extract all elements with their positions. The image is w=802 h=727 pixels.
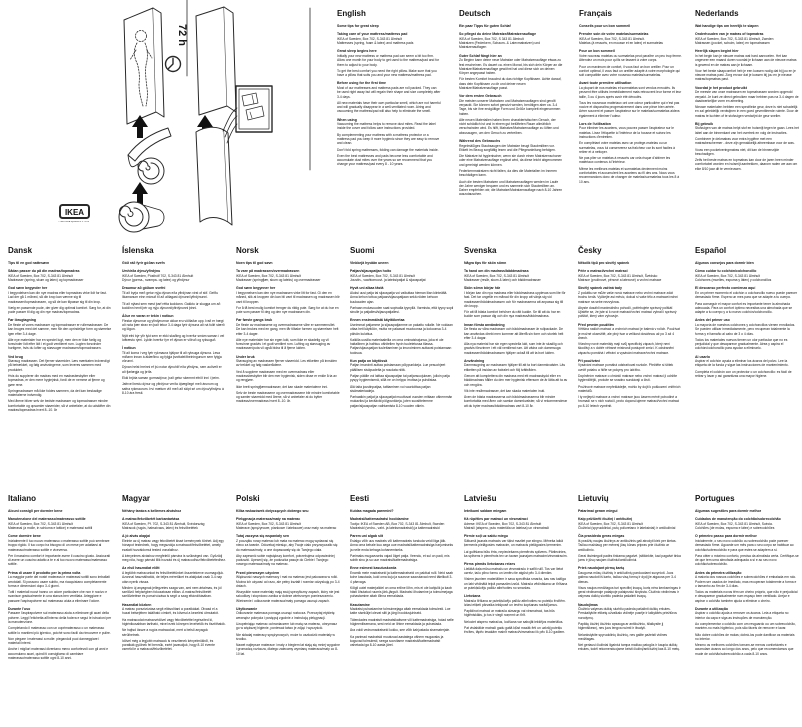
paragraph: A kényelmes alváshoz megfelelő párnára i… (122, 554, 226, 563)
section: Under brukStøvsuging av madrassen fjerne… (236, 355, 340, 404)
paragraph: Parhaan mukavuuden saat sopivalla tyynyl… (350, 306, 454, 315)
paragraph: Všechny nové materiály mají svůj specifi… (578, 342, 682, 355)
paragraph: Pour éliminer les acariens, vous pouvez … (579, 126, 683, 139)
paragraph: Visos naujos medžiagos turi specifinį kv… (578, 586, 682, 599)
paragraph: För att få bästa komfort behöver du rätt… (464, 310, 568, 319)
product-line: Colchones (muelles, espuma y látex) y co… (695, 278, 799, 282)
section: Prima di usare il prodotto per la prima … (8, 571, 112, 603)
paragraph: Ao complementar o colchão com um resguar… (695, 622, 799, 631)
section: Durante a utilizaçãoAspirar o colchão aj… (695, 607, 799, 656)
paragraph: De fleste af vores madrasser og topmadra… (8, 323, 112, 336)
section: When usingVacuuming the mattress helps t… (337, 118, 441, 167)
paragraph: Čiužinio valymas dulkių siurbliu padeda … (578, 607, 682, 620)
section: Come dormire beneInizialmente il tuo nuo… (8, 534, 112, 566)
paragraph: Vacuuming the mattress helps to remove d… (337, 122, 441, 131)
paragraph: By complementing your mattress with a ma… (337, 133, 441, 146)
section: O primeiro passo para dormir melhorInici… (695, 534, 799, 566)
paragraph: Flestar dýnurnar og yfirdýnurnar okkar e… (122, 319, 226, 332)
paragraph: Auch die besten Matratzen und Matratzena… (459, 180, 563, 197)
ikea-logo: IKEA (60, 205, 89, 218)
paragraph: En complétant votre matelas avec un prot… (579, 141, 683, 154)
language-column-fran-ais: FrançaisConseils pour un bon sommeilPren… (579, 10, 683, 186)
section: KasutamineMadratsi puhastamine tolmuimej… (350, 603, 454, 648)
paragraph: Même les meilleurs matelas et surmatelas… (579, 167, 683, 184)
section: Prieš naudojant pirmą kartąDauguma mūsų … (578, 566, 682, 598)
language-title: Nederlands (695, 10, 799, 19)
section: Al usarloAspirar el colchón ayuda a elim… (695, 355, 799, 379)
language-column-dansk: DanskTips til en god nattesøvnSådan pass… (8, 247, 112, 414)
paragraph: Zelfs het beste matras en topmatras kan … (695, 158, 799, 171)
paragraph: Visiem jauniem materiāliem ir sava speci… (464, 577, 568, 590)
paragraph: Dammsugning av madrassen hjälper till at… (464, 363, 568, 372)
section: Während des GebrauchsRegelmäßiges Staubs… (459, 139, 563, 197)
paragraph: Większość naszych materacy i mat na mate… (236, 575, 340, 588)
product-line: Matrači (atsperu, putu materiāla un late… (464, 526, 568, 530)
paragraph: Z počátku se může vaše nová matrace nebo… (578, 291, 682, 304)
paragraph: Todos os materiais novos têm um cheiro p… (695, 590, 799, 603)
product-line: Matelas (à ressorts, en mousse et en lat… (579, 41, 683, 45)
section: Before using for the first timeMost of o… (337, 81, 441, 113)
language-column-suomi: SuomiVinkkejä hyvään uneenPatjan/sijausp… (350, 247, 454, 410)
paragraph: Die meisten unserer Matratzen und Matrat… (459, 99, 563, 116)
product-line: Materace (sprężynowe, piankowe i latekso… (236, 526, 340, 530)
language-title: Français (579, 10, 683, 19)
section: Áður en varan er tekin í notkunFlestar d… (122, 314, 226, 342)
paragraph: Vouw een pocketveringmatras niet, dit ka… (695, 148, 799, 157)
paragraph: Hvis du supplerer din madras med en madr… (8, 374, 112, 387)
language-title: Eesti (350, 495, 454, 504)
language-title: Polski (236, 495, 340, 504)
section: Antes del primer usoLa mayoría de nuestr… (695, 318, 799, 350)
language-title: Lietuvių (578, 495, 682, 504)
paragraph: Til að byrja með getur nýja dýnan eða yf… (122, 291, 226, 300)
tagline: Some tips for great sleep (337, 24, 441, 29)
paragraph: Ekki brjóta saman gormadýnur, það getur … (122, 376, 226, 380)
paragraph: Støvsug madrassen. Det fjerner støvmider… (8, 359, 112, 372)
paragraph: Para obter o máximo conforto, precisa da… (695, 554, 799, 567)
paragraph: Většina našich matrací a vrchních matrac… (578, 327, 682, 340)
paragraph: A maioria dos nossos colchões e sobrecol… (695, 575, 799, 588)
paragraph: Stofzuigen van de matras helpt stof en h… (695, 126, 799, 135)
paragraph: Iš pradžių naujas čiužinys ar antčiužini… (578, 539, 682, 552)
paragraph: Med årene bliver selv de bedste madrasse… (8, 399, 112, 412)
section: Durante l'usoPassare l'aspirapolvere sul… (8, 607, 112, 660)
tagline: Kilka wskazówek dotyczących dobrego snu (236, 509, 340, 514)
paragraph: Don't fold spring mattresses, folding ca… (337, 148, 441, 152)
section: Tutaj zaczyna się wspaniały senZ początk… (236, 534, 340, 566)
language-title: Italiano (8, 495, 112, 504)
paragraph: Även de bästa madrasserna och bäddmadras… (464, 395, 568, 408)
tagline: Algumas sugestões para dormir melhor (695, 509, 799, 514)
paragraph: Sākumā jaunais matracis var šķist mazlie… (464, 539, 568, 548)
language-title: Magyar (122, 495, 226, 504)
section: Pirmie soļi uz saldu mieguSākumā jaunais… (464, 534, 568, 558)
section: Skön sömn börjar härI början kan din nya… (464, 286, 568, 318)
section: Vor dem ersten GebrauchDie meisten unser… (459, 94, 563, 135)
paragraph: Selv de beste madrassene og overmadrasse… (236, 391, 340, 404)
language-column-svenska: SvenskaNågra tips för skön sömnTa hand o… (464, 247, 568, 410)
paragraph: Todos los materiales nuevos tienen un ol… (695, 338, 799, 351)
language-title: Íslenska (122, 247, 226, 256)
section: Skvělý spánek začíná tadyZ počátku se mů… (578, 286, 682, 318)
paragraph: Die Matratze ist hygienischer, wenn sie … (459, 154, 563, 167)
paragraph: Eleinte az új matrac vagy fekvőbetét kis… (122, 539, 226, 552)
product-line: Joustin-, vaahtomuovi- ja lateksipatjat … (350, 278, 454, 282)
paragraph: Für besten Komfort brauchst du das richt… (459, 77, 563, 90)
tagline: Noen tips til god søvn (236, 261, 340, 266)
paragraph: Per il massimo comfort è importante aver… (8, 554, 112, 567)
paragraph: Parimaks mugavuseks vajad õiget patja. V… (350, 554, 454, 563)
language-title: Portugues (695, 495, 799, 504)
section: Innan första användningDe flesta av våra… (464, 323, 568, 355)
language-column-espa-ol: EspañolAlgunos consejos para dormir bien… (695, 247, 799, 380)
clock-icon (166, 57, 181, 72)
paragraph: Lai gulēšana būtu ērta, nepieciešams pie… (464, 550, 568, 559)
product-line: Dýnur (gorma-, svampa- og latex) og yfir… (122, 278, 226, 282)
mattress-roll-illustration (119, 202, 164, 232)
tagline: Ein paar Tipps für guten Schlaf (459, 24, 563, 29)
product-line: Materassi (a molle, in schiuma e lattice… (8, 526, 112, 530)
paragraph: Initially your new mattress or mattress … (337, 54, 441, 67)
section: Avant toute première utilisationLa plupa… (579, 81, 683, 118)
product-line: Mattresses (spring, foam & latex) and ma… (337, 41, 441, 45)
paragraph: Kõigil uutel materjalidel on oma eriline… (350, 586, 454, 599)
section: Bij gebruikStofzuigen van de matras help… (695, 122, 799, 171)
paragraph: Esialgu võib uus madrats või kattemadrat… (350, 539, 454, 552)
paragraph: Useimmat patjamme ja sijauspatjamme on p… (350, 323, 454, 336)
curved-mattress-illustration (196, 127, 232, 225)
section: God søvn begynder herI begyndelsen kan d… (8, 286, 112, 314)
paragraph: Anche i migliori materassi diventano men… (8, 647, 112, 660)
section: Při používáníVysávání matrace pomáhá ods… (578, 359, 682, 408)
paragraph: De fleste av madrassene og overmadrassen… (236, 323, 340, 336)
paragraph: Lielākā daļa mūsu matraču un virsmatraču… (464, 567, 568, 576)
section: Draumur að góðum svefniTil að byrja með … (122, 286, 226, 310)
section: Í notkunTil að koma í veg fyrir rykmaura… (122, 346, 226, 395)
tagline: Wat handige tips om heerlijk te slapen (695, 24, 799, 29)
section: El descanso perfecto comienza aquíEn un … (695, 286, 799, 314)
language-column-magyar: MagyarNéhány tanács a kellemes alváshozA… (122, 495, 226, 654)
paragraph: Idővel még a legjobb matracok is veszíte… (122, 639, 226, 652)
paragraph: Net geriausi čiužiniai ilgainiui tampa m… (578, 643, 682, 652)
language-column-english: EnglishSome tips for great sleepTaking c… (337, 10, 441, 169)
paragraph: Ka parimad madratsid muutuvad aastatega … (350, 635, 454, 648)
language-title: Svenska (464, 247, 568, 256)
language-column-latvie-u: LatviešuIeteikumi saldam miegamKā rūpēti… (464, 495, 568, 637)
paragraph: Tous les nouveaux matériaux ont une odeu… (579, 101, 683, 118)
paragraph: Ved å supplere madrassen med en overmadr… (236, 370, 340, 383)
product-line: Čiužiniai (spyruokliniai, putų poliureta… (578, 526, 682, 530)
language-title: Suomi (350, 247, 454, 256)
paragraph: Pat vislabākie matrači gadu gaitā kļūst … (464, 626, 568, 635)
section: Pirms pirmās lietošanas reizesLielākā da… (464, 562, 568, 590)
paragraph: Nie składaj materacy sprężynowych, może … (236, 633, 340, 642)
paragraph: Parhaatkin patjat ja sijauspatjat muuttu… (350, 395, 454, 408)
paragraph: All new materials have their own particu… (337, 101, 441, 114)
section: Před prvním použitímVětšina našich matra… (578, 323, 682, 355)
paragraph: Regelmäßiges Staubsaugen der Matratze be… (459, 144, 563, 153)
language-title: Česky (578, 247, 682, 256)
section: AnvändningDammsugning av madrassen hjälp… (464, 359, 568, 408)
paragraph: Matrača tīrīšana ar putekļsūcēju palīdz … (464, 599, 568, 608)
paragraph: Aspirar el colchón ayuda a eliminar los … (695, 359, 799, 368)
section: Guter Schlaf fängt hier anZu Beginn kann… (459, 54, 563, 91)
section: A jó alvás alapjaiEleinte az új matrac v… (122, 534, 226, 562)
paragraph: Nelankstykite spyruoklinių čiužinių, nes… (578, 633, 682, 642)
paragraph: Täiendades madratsit madratsikaitsme või… (350, 618, 454, 627)
paragraph: Alle nye materialer har en speciel lugt,… (8, 338, 112, 351)
tagline: Alcuni consigli per dormire bene (8, 509, 112, 514)
paragraph: Nelociet atsperu matračus, locīšana var … (464, 620, 568, 624)
tagline: Několik tipů pro skvělý spánek (578, 261, 682, 266)
language-title: Norsk (236, 247, 340, 256)
tagline: Conseils pour un bon sommeil (579, 24, 683, 29)
paragraph: Mesmo os melhores colchões tornam-se men… (695, 643, 799, 656)
paragraph: Completa el colchón con un protector o u… (695, 370, 799, 379)
paragraph: Inicialmente, o seu novo colchão ou sobr… (695, 539, 799, 552)
product-line: Matrace (pružinové, pěnové a latexové) a… (578, 278, 682, 282)
product-line: Matratzen (Federkern, Schaum- & Latexmat… (459, 41, 563, 50)
paragraph: Vik inte resårmadrasser, det kan skada m… (464, 389, 568, 393)
paragraph: Dauguma mūsų čiužinių ir antčiužinių par… (578, 571, 682, 584)
section: Før ibrugtagningDe fleste af vores madra… (8, 318, 112, 350)
paragraph: Completando il materasso con un coprimat… (8, 626, 112, 635)
paragraph: I begynnelsen kan den nye madrassen virk… (236, 291, 340, 304)
paragraph: I ty nejlepší matrace a vrchní matrace j… (578, 395, 682, 408)
section: Ved brugStøvsug madrassen. Det fjerner s… (8, 355, 112, 413)
language-title: Dansk (8, 247, 112, 256)
section: Hyvä uni alkaa tästäAluksi uusi patja ta… (350, 286, 454, 314)
tagline: Ieteikumi saldam miegam (464, 509, 568, 514)
product-line: Madratsid (vedru-, vaht- ja lateksmadrat… (350, 526, 454, 530)
paragraph: In het begin kan je nieuwe matras wat ha… (695, 54, 799, 67)
language-column-polski: PolskiKilka wskazówek dotyczących dobreg… (236, 495, 340, 658)
language-title: Latviešu (464, 495, 568, 504)
paragraph: Para conseguir el mayor confort es impor… (695, 302, 799, 315)
paragraph: Wszystkie nowe materiały mają swój specy… (236, 590, 340, 603)
paragraph: Nieuwe materialen hebben een specifieke … (695, 105, 799, 118)
paragraph: Zu Beginn kann deine neue Matratze oder … (459, 58, 563, 75)
product-line: Madrasser (springfjær, skum og lateks) o… (236, 278, 340, 282)
paragraph: Combineer je dekmatras voor extra hygiën… (695, 137, 799, 146)
paragraph: Pružinové matrace nepřekládejte, mohlo b… (578, 385, 682, 394)
section: Lors de l'utilisationPour éliminer les a… (579, 122, 683, 184)
paragraph: Z początku nowy materac lub mata na mate… (236, 539, 340, 552)
language-column-italiano: ItalianoAlcuni consigli per dormire bene… (8, 495, 112, 662)
section: Kun patja on käytössäPatjan imurointi au… (350, 359, 454, 408)
tagline: Kuidas magada paremini? (350, 509, 454, 514)
product-line: Madrasser (spring, skum og latex) og top… (8, 278, 112, 282)
paragraph: La plupart de nos matelas et surmatelas … (579, 86, 683, 99)
paragraph: Most of our mattresses and mattress pads… (337, 86, 441, 99)
paragraph: Pour un maximum de confort, il vous faut… (579, 65, 683, 78)
section: Voordat je het product gebruiktDe meeste… (695, 86, 799, 118)
paragraph: A matrac porszívózása segít eltávolítani… (122, 607, 226, 616)
paragraph: Springmadrasser må ikke foldes sammen, d… (8, 389, 112, 398)
paragraph: Abyste dosáhli maximálního pohodlí, potř… (578, 306, 682, 319)
product-line: Madrasser (resår, skum & latex) och bädd… (464, 278, 568, 282)
paragraph: Ne pas plier un matelas à ressorts car c… (579, 156, 683, 165)
paragraph: Passare l'aspirapolvere sul materasso ai… (8, 611, 112, 624)
paragraph: De flesta av våra madrasser och bäddmadr… (464, 327, 568, 340)
language-title: Español (695, 247, 799, 256)
assembly-illustration: 72 h (0, 0, 330, 245)
section: Használat közbenA matrac porszívózása se… (122, 603, 226, 652)
tagline: Några tips för skön sömn (464, 261, 568, 266)
mattress-care-instruction-sheet: 72 h (0, 0, 802, 727)
section: Før første gangs brukDe fleste av madras… (236, 318, 340, 350)
section: Enne esimest kasutuskordaEnamik meie mad… (350, 566, 454, 598)
paragraph: Doplněním matrace o chránič matrace nebo… (578, 374, 682, 383)
paragraph: I begyndelsen kan din nye madras eller t… (8, 291, 112, 304)
timer-label: 72 h (176, 24, 188, 46)
language-column-eesti: EestiKuidas magada paremini?Madratsi/kat… (350, 495, 454, 649)
paragraph: Dýnan helst hreinni ef þú notar dýnuhlíf… (122, 365, 226, 374)
tagline: Tips til en god nattesøvn (8, 261, 112, 266)
language-column-portugues: PortuguesAlgumas sugestões para dormir m… (695, 495, 799, 658)
paragraph: Aby zapewnić sobie największy komfort, p… (236, 554, 340, 567)
section: Great sleep begins hereInitially your ne… (337, 49, 441, 77)
paragraph: Alla nya material har sin egen speciella… (464, 342, 568, 355)
ikea-logo-text: IKEA (65, 208, 84, 217)
language-column-lietuvi-: LietuviųPatarimai geram mieguiKaip priži… (578, 495, 682, 654)
paragraph: Voor het beste slaapcomfort heb je een k… (695, 69, 799, 82)
mattress-with-person-illustration (124, 8, 164, 124)
paragraph: Papildę čiužinį čiužinio apsauga ar antč… (578, 622, 682, 631)
paragraph: Til að koma í veg fyrir rykmaura hjálpar… (122, 351, 226, 364)
flat-mattress-illustration (196, 7, 236, 115)
paragraph: Alle neuen Materialien haben ihren chara… (459, 118, 563, 135)
section: LietošanaMatrača tīrīšana ar putekļsūcēj… (464, 594, 568, 635)
paragraph: Älä taita joustinpatjaa, taittaminen voi… (350, 385, 454, 394)
section: Antes da primeira utilizaçãoA maioria do… (695, 571, 799, 603)
language-title: English (337, 10, 441, 19)
paragraph: Gerai išsimiegoti padės tinkama pagalvė.… (578, 554, 682, 563)
paragraph: Patjan päälle voi laittaa sijauspatjan t… (350, 374, 454, 383)
paragraph: Ne hajtsd össze a rugós matracokat, mert… (122, 628, 226, 637)
paragraph: Não dobre colchões de molas; dobrá-los p… (695, 633, 799, 642)
paragraph: Non piegare i materassi a molle: piegand… (8, 637, 112, 646)
paragraph: I början kan din nya madrass eller bäddm… (464, 291, 568, 308)
paragraph: Tutti i materiali nuovi hanno un odore p… (8, 590, 112, 603)
paragraph: Patjan imurointi auttaa poistamaan pölyp… (350, 363, 454, 372)
tagline: Néhány tanács a kellemes alváshoz (122, 509, 226, 514)
paragraph: A legtöbb matracunkat és fekvőbetétünket… (122, 571, 226, 584)
section: Parem uni algab siitEsialgu võib uus mad… (350, 534, 454, 562)
paragraph: Aluksi uusi patja tai sijauspatja voi va… (350, 291, 454, 304)
paragraph: Enamik meie madratseid ja kattemadratsei… (350, 571, 454, 584)
language-title: Deutsch (459, 10, 563, 19)
tagline: Patarimai geram miegui (578, 509, 682, 514)
paragraph: La mayoría de nuestros colchones y colch… (695, 323, 799, 336)
language-column-nederlands: NederlandsWat handige tips om heerlijk t… (695, 10, 799, 173)
language-column-norsk: NorskNoen tips til god søvnTa vare på ma… (236, 247, 340, 406)
section: Pour un bon sommeilVotre nouveau matelas… (579, 49, 683, 77)
language-column--esky: ČeskyNěkolik tipů pro skvělý spánekPéče … (578, 247, 682, 410)
product-line: Matracok (rugós, habszivacs, latex) és f… (122, 526, 226, 530)
paragraph: Ha matracodat matracvédővel vagy fekvőbe… (122, 618, 226, 627)
section: Przed pierwszym użyciemWiększość naszych… (236, 571, 340, 603)
paragraph: Aspirar o colchão ajuda a remover os áca… (695, 611, 799, 620)
paragraph: Minden új anyagnak jellegzetes szaga van… (122, 586, 226, 599)
section: Čia prasideda geras miegasIš pradžių nau… (578, 534, 682, 562)
section: NaudojimasČiužinio valymas dulkių siurbl… (578, 603, 682, 652)
paragraph: Even the best mattresses and pads become… (337, 154, 441, 167)
product-line: Matrassen (pocket, schuim, latex) en top… (695, 41, 799, 45)
paragraph: En un primer momento el colchón o colcho… (695, 291, 799, 300)
paragraph: Madratsi puhastamine tolmuimejaga aitab … (350, 607, 454, 616)
paragraph: De meeste van onze matrassen en topmatra… (695, 90, 799, 103)
rolled-pad-illustration (128, 128, 171, 184)
paragraph: Papildinot matraci ar matrača aizsargu v… (464, 609, 568, 618)
copyright-text: © Inter IKEA Systems B.V. 2019 (58, 221, 92, 224)
paragraph: For å få best mulig komfort trenger du r… (236, 306, 340, 315)
paragraph: Vælg en passende pude, der giver dig opt… (8, 306, 112, 315)
section: UżytkowanieOdkurzanie materaca pomaga us… (236, 607, 340, 656)
paragraph: Nawet najlepsze materace i maty z biegie… (236, 643, 340, 656)
paragraph: Ikke brett springfjærmadrasser, det kan … (236, 385, 340, 389)
paragraph: Votre nouveau matelas ou surmatelas peut… (579, 54, 683, 63)
paragraph: Alle nye materialer har sin egen lukt, s… (236, 338, 340, 351)
paragraph: Til að nýtast sem mest þarf rétta koddan… (122, 302, 226, 311)
section: God søvn begynner herI begynnelsen kan d… (236, 286, 340, 314)
paragraph: Vysávání matrace pomáhá odstraňovat rozt… (578, 363, 682, 372)
tagline: Algunos consejos para dormir bien (695, 261, 799, 266)
paragraph: Kaikilla uusilla materiaaleilla on oma o… (350, 338, 454, 355)
paragraph: Ära voldi vedrumadratseid kokku, see või… (350, 628, 454, 632)
section: Ennen ensimmäistä käyttökertaaUseimmat p… (350, 318, 454, 355)
tagline: Góð ráð fyrir góðan svefn (122, 261, 226, 266)
section: Heerlijk slapen begint hierIn het begin … (695, 49, 799, 81)
product-line: Colchões (de molas, espuma e látex) e so… (695, 526, 799, 530)
paragraph: Jafnvel bestu dýnur og yfirdýnur verða ó… (122, 382, 226, 395)
section: Az első használat előttA legtöbb matracu… (122, 566, 226, 598)
language-column-deutsch: DeutschEin paar Tipps für guten SchlafSo… (459, 10, 563, 199)
language-column--slenska: ÍslenskaGóð ráð fyrir góðan svefnUmhirða… (122, 247, 226, 397)
paragraph: Støvsuging av madrassen fjerner støvmidd… (236, 359, 340, 368)
paragraph: La maggior parte dei nostri materassi e … (8, 575, 112, 588)
paragraph: To get the best comfort you need the rig… (337, 69, 441, 78)
paragraph: Federkernmatratzen nicht falten, da dies… (459, 169, 563, 178)
paragraph: Inizialmente il tuo nuovo materasso o ma… (8, 539, 112, 552)
paragraph: Uzupełniając materac ochraniaczem lub ma… (236, 622, 340, 631)
paragraph: Nýtt efni býr yfir lykt sem er ekki skað… (122, 334, 226, 343)
paragraph: Genom att komplettera din madrass med et… (464, 374, 568, 387)
tagline: Vinkkejä hyvään uneen (350, 261, 454, 266)
paragraph: Odkurzanie materaca pomaga usunąć roztoc… (236, 611, 340, 620)
